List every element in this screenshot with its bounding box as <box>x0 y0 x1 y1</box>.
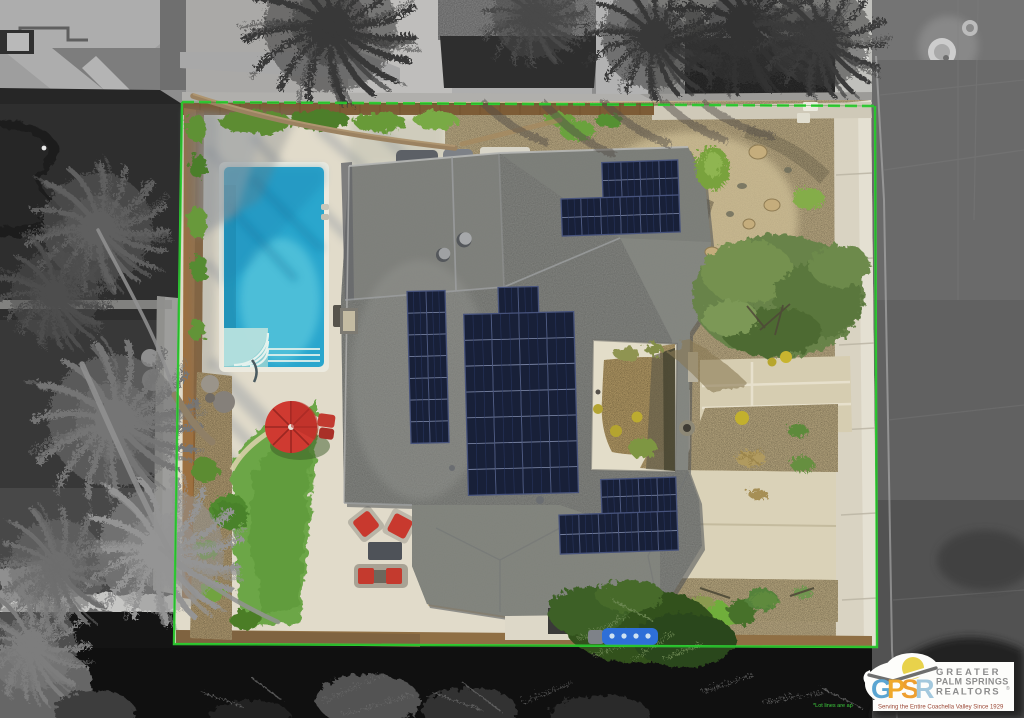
svg-text:PALM SPRINGS: PALM SPRINGS <box>936 677 1009 687</box>
svg-text:REALTORS: REALTORS <box>936 687 1000 698</box>
svg-text:Serving the Entire Coachella V: Serving the Entire Coachella Valley Sinc… <box>878 705 1004 711</box>
svg-text:®: ® <box>1006 685 1010 692</box>
svg-text:R: R <box>915 674 935 704</box>
svg-text:*Lot lines are ap: *Lot lines are ap <box>813 703 853 709</box>
